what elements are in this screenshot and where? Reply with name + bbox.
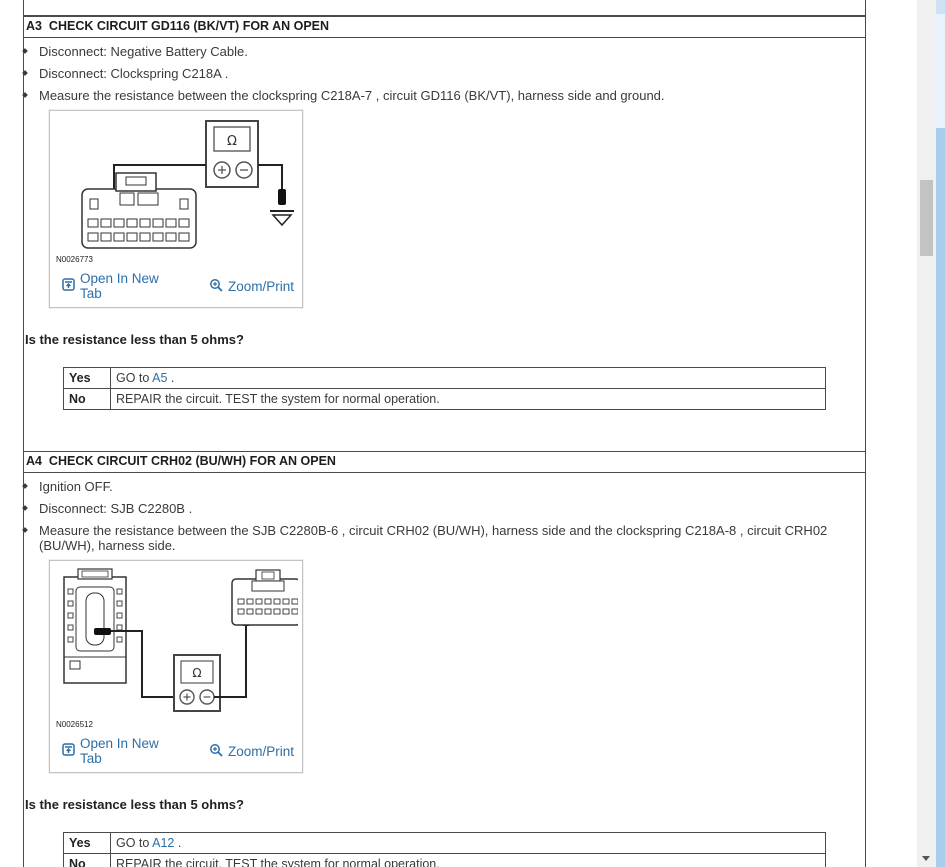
goto-step-link[interactable]: A12 — [152, 836, 174, 850]
action-text-post: . — [167, 371, 174, 385]
answer-action-cell: GO to A12 . — [111, 833, 826, 854]
step-a4-instructions: Ignition OFF. Disconnect: SJB C2280B . M… — [24, 479, 865, 553]
open-in-new-tab-icon — [62, 743, 75, 759]
open-in-new-tab-icon — [62, 278, 75, 294]
previous-step-fragment — [24, 0, 865, 16]
zoom-print-label: Zoom/Print — [228, 279, 294, 294]
step-a4: A4 CHECK CIRCUIT CRH02 (BU/WH) FOR AN OP… — [24, 451, 865, 867]
bullet-item: Disconnect: Negative Battery Cable. — [24, 44, 851, 59]
open-in-new-tab-link[interactable]: Open In New Tab — [62, 271, 171, 301]
inner-scrollbar[interactable] — [917, 0, 936, 867]
zoom-print-link[interactable]: Zoom/Print — [209, 743, 294, 760]
open-in-new-tab-label: Open In New Tab — [80, 736, 171, 766]
zoom-print-label: Zoom/Print — [228, 744, 294, 759]
manual-page: A3 CHECK CIRCUIT GD116 (BK/VT) FOR AN OP… — [0, 0, 945, 867]
figure-label: N0026773 — [54, 255, 298, 265]
bullet-item: Measure the resistance between the SJB C… — [24, 523, 851, 553]
step-a4-header: A4 CHECK CIRCUIT CRH02 (BU/WH) FOR AN OP… — [24, 451, 865, 473]
step-a3-instructions: Disconnect: Negative Battery Cable. Disc… — [24, 44, 865, 103]
magnifier-icon — [209, 743, 223, 760]
step-a3: A3 CHECK CIRCUIT GD116 (BK/VT) FOR AN OP… — [24, 16, 865, 451]
magnifier-icon — [209, 278, 223, 295]
page-scrollbar-thumb[interactable] — [936, 128, 945, 867]
question-text: Is the resistance less than 5 ohms? — [25, 797, 865, 812]
ohm-symbol: Ω — [192, 666, 201, 680]
answer-table-a3: Yes GO to A5 . No REPAIR the circuit. TE… — [63, 367, 826, 410]
action-text: GO to — [116, 371, 152, 385]
bullet-item: Disconnect: SJB C2280B . — [24, 501, 851, 516]
answer-label-cell: Yes — [64, 833, 111, 854]
action-text: REPAIR the circuit. TEST the system for … — [116, 857, 440, 867]
step-a4-body: Ignition OFF. Disconnect: SJB C2280B . M… — [24, 473, 865, 867]
answer-action-cell: REPAIR the circuit. TEST the system for … — [111, 389, 826, 410]
open-in-new-tab-link[interactable]: Open In New Tab — [62, 736, 171, 766]
step-a3-header: A3 CHECK CIRCUIT GD116 (BK/VT) FOR AN OP… — [24, 16, 865, 38]
figure-label: N0026512 — [54, 720, 298, 730]
answer-row-no: No REPAIR the circuit. TEST the system f… — [64, 389, 826, 410]
scroll-down-button[interactable] — [917, 851, 936, 867]
page-scrollbar[interactable] — [936, 0, 945, 867]
action-text: GO to — [116, 836, 152, 850]
inner-scrollbar-thumb[interactable] — [920, 180, 933, 256]
step-a3-body: Disconnect: Negative Battery Cable. Disc… — [24, 38, 865, 451]
page-scrollbar-track-cap — [936, 0, 945, 14]
bullet-item: Ignition OFF. — [24, 479, 851, 494]
step-a4-title: A4 CHECK CIRCUIT CRH02 (BU/WH) FOR AN OP… — [26, 454, 336, 468]
bullet-item: Measure the resistance between the clock… — [24, 88, 851, 103]
answer-row-yes: Yes GO to A5 . — [64, 368, 826, 389]
answer-label-cell: No — [64, 854, 111, 867]
circuit-diagram-figure-2: Ω — [49, 560, 303, 773]
step-a3-title: A3 CHECK CIRCUIT GD116 (BK/VT) FOR AN OP… — [26, 19, 329, 33]
procedure-table: A3 CHECK CIRCUIT GD116 (BK/VT) FOR AN OP… — [23, 0, 866, 867]
action-text-post: . — [174, 836, 181, 850]
circuit-diagram-1: Ω — [54, 115, 298, 255]
answer-row-yes: Yes GO to A12 . — [64, 833, 826, 854]
ohm-symbol: Ω — [227, 134, 237, 149]
open-in-new-tab-label: Open In New Tab — [80, 271, 171, 301]
goto-step-link[interactable]: A5 — [152, 371, 167, 385]
circuit-diagram-figure-1: Ω — [49, 110, 303, 308]
answer-table-a4: Yes GO to A12 . No REPAIR the circuit. T… — [63, 832, 826, 867]
bullet-item: Disconnect: Clockspring C218A . — [24, 66, 851, 81]
answer-action-cell: GO to A5 . — [111, 368, 826, 389]
zoom-print-link[interactable]: Zoom/Print — [209, 278, 294, 295]
question-text: Is the resistance less than 5 ohms? — [25, 332, 865, 347]
answer-label-cell: No — [64, 389, 111, 410]
action-text: REPAIR the circuit. TEST the system for … — [116, 392, 440, 406]
circuit-diagram-2: Ω — [54, 565, 298, 720]
answer-action-cell: REPAIR the circuit. TEST the system for … — [111, 854, 826, 867]
answer-label-cell: Yes — [64, 368, 111, 389]
answer-row-no: No REPAIR the circuit. TEST the system f… — [64, 854, 826, 867]
